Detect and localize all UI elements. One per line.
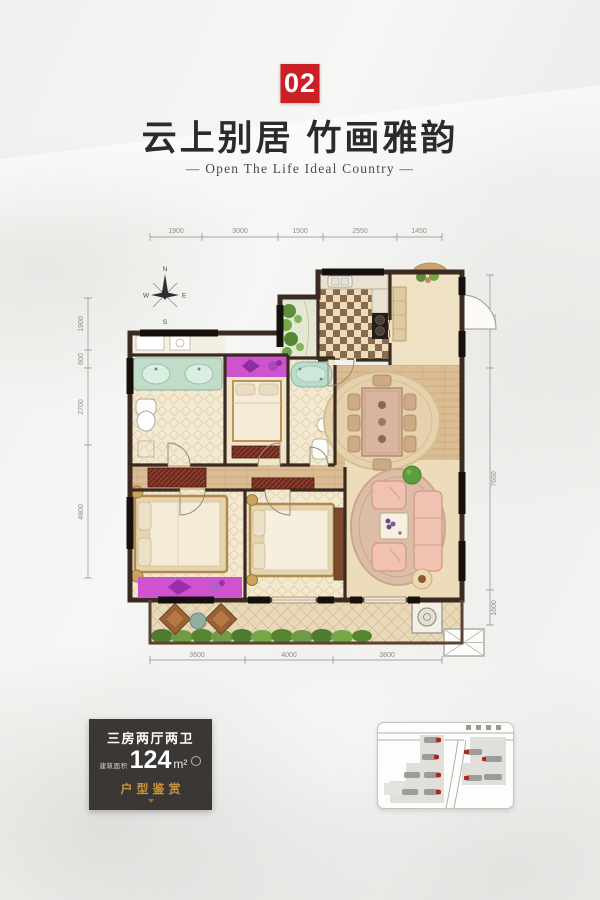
floor-plan: 1900 3000 1500 2550 1450 1900 600 2700 4… [60, 225, 540, 675]
area-value: 124 [130, 748, 172, 773]
svg-text:1900: 1900 [78, 316, 85, 332]
svg-text:1900: 1900 [168, 228, 184, 235]
tagline: 户型鉴赏 [89, 780, 212, 797]
svg-text:1600: 1600 [491, 600, 498, 616]
floor-plan-drawing: 1900 3000 1500 2550 1450 1900 600 2700 4… [60, 225, 540, 675]
compass-icon: N W E S [143, 266, 187, 326]
map-block-left [384, 735, 444, 803]
area-unit: m² [173, 757, 187, 771]
svg-text:4800: 4800 [78, 504, 85, 520]
area-label: 建筑面积 [100, 760, 128, 770]
svg-text:3000: 3000 [232, 228, 248, 235]
dining-room [324, 372, 440, 470]
laundry-balcony [136, 336, 190, 350]
svg-text:600: 600 [78, 353, 85, 365]
site-map [377, 722, 514, 809]
svg-text:S: S [163, 319, 168, 326]
svg-text:1500: 1500 [292, 228, 308, 235]
info-box: 三房两厅两卫 建筑面积 124 m² 户型鉴赏 [89, 719, 212, 810]
svg-text:N: N [163, 266, 168, 273]
svg-text:3800: 3800 [379, 652, 395, 659]
svg-text:W: W [143, 293, 150, 300]
layout-type: 三房两厅两卫 [89, 728, 212, 747]
svg-text:3600: 3600 [189, 652, 205, 659]
svg-text:E: E [182, 293, 187, 300]
svg-text:2700: 2700 [78, 399, 85, 415]
svg-text:1450: 1450 [411, 228, 427, 235]
area-line: 建筑面积 124 m² [89, 748, 212, 773]
site-map-drawing [378, 723, 513, 808]
map-title-marks [466, 725, 501, 730]
page-title: 云上别居 竹画雅韵 [0, 110, 600, 161]
page-number-badge: 02 [281, 64, 320, 103]
tagline-mark-icon [148, 799, 154, 803]
page-subtitle: — Open The Life Ideal Country — [0, 161, 600, 177]
svg-text:7650: 7650 [491, 471, 498, 487]
entry-door-arc [462, 295, 496, 329]
bedroom-3-furniture [247, 495, 345, 586]
svg-text:4000: 4000 [281, 652, 297, 659]
svg-text:2550: 2550 [352, 228, 368, 235]
master-bedroom [131, 486, 242, 597]
map-block-right [462, 737, 506, 785]
area-badge-icon [191, 756, 201, 766]
poster: 02 云上别居 竹画雅韵 — Open The Life Ideal Count… [0, 0, 600, 900]
